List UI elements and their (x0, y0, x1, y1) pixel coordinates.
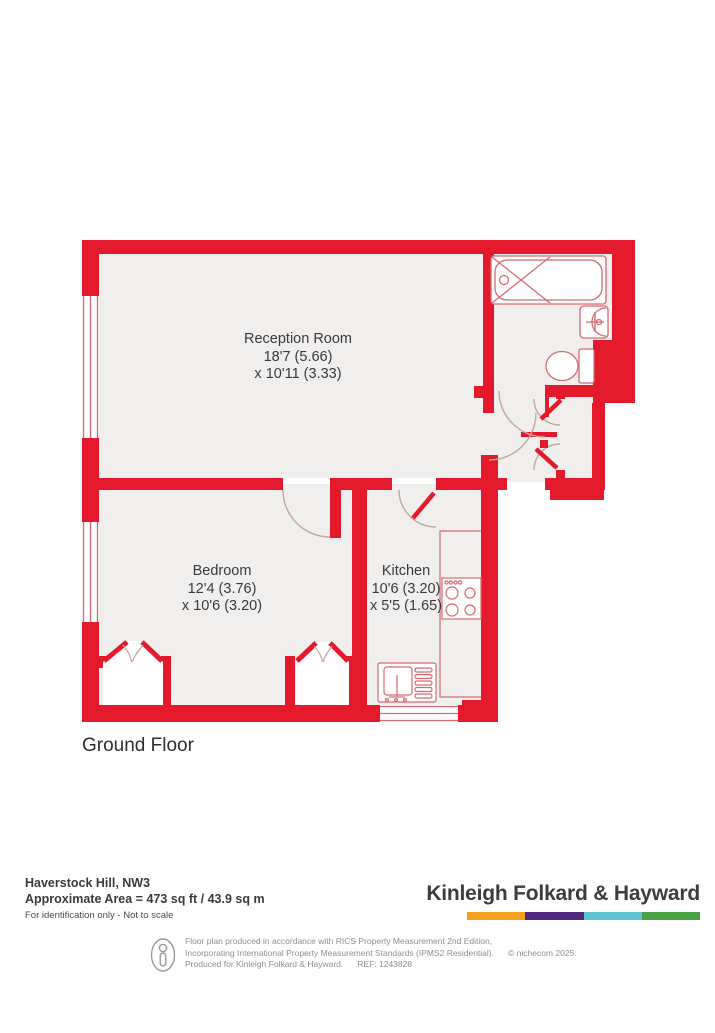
disclaimer: Floor plan produced in accordance with R… (150, 936, 577, 973)
brand-bar-green (642, 912, 700, 920)
room-dim-2: x 10'6 (3.20) (122, 598, 322, 616)
bathtub-icon (491, 256, 606, 304)
room-dim-2: x 10'11 (3.33) (198, 366, 398, 384)
room-dim-1: 18'7 (5.66) (198, 349, 398, 367)
disclaimer-ref: REF: 1243828 (357, 959, 412, 969)
bedroom-door-leaf (330, 490, 341, 538)
disclaimer-line-2: Incorporating International Property Mea… (185, 948, 577, 960)
disclaimer-line-3: Produced for Kinleigh Folkard & Hayward.… (185, 959, 577, 971)
room-name: Reception Room (198, 331, 398, 349)
disclaimer-line-1: Floor plan produced in accordance with R… (185, 936, 577, 948)
room-name: Bedroom (122, 563, 322, 581)
washbasin-icon (580, 306, 608, 338)
brand-color-bar (467, 912, 700, 920)
disclaimer-copyright: © nichecom 2025. (508, 948, 577, 958)
bedroom-label: Bedroom 12'4 (3.76) x 10'6 (3.20) (122, 563, 322, 616)
property-address: Haverstock Hill, NW3 (25, 875, 265, 891)
disclaimer-produced-for: Produced for Kinleigh Folkard & Hayward. (185, 959, 343, 969)
brand-name: Kinleigh Folkard & Hayward (426, 882, 700, 906)
kitchen-sink-icon (378, 663, 436, 702)
floor-title: Ground Floor (82, 735, 194, 757)
disclaimer-text: Floor plan produced in accordance with R… (185, 936, 577, 971)
nichecom-person-icon (150, 937, 176, 973)
property-info: Haverstock Hill, NW3 Approximate Area = … (25, 875, 265, 921)
brand-bar-teal (584, 912, 642, 920)
room-name: Kitchen (331, 563, 481, 581)
brand-bar-orange (467, 912, 525, 920)
disclaimer-line-2-text: Incorporating International Property Mea… (185, 948, 494, 958)
toilet-icon (546, 349, 594, 383)
reception-room-label: Reception Room 18'7 (5.66) x 10'11 (3.33… (198, 331, 398, 384)
brand-bar-purple (525, 912, 583, 920)
room-dim-2: x 5'5 (1.65) (331, 598, 481, 616)
brand-logo: Kinleigh Folkard & Hayward (426, 882, 700, 920)
room-dim-1: 12'4 (3.76) (122, 581, 322, 599)
room-dim-1: 10'6 (3.20) (331, 581, 481, 599)
approximate-area: Approximate Area = 473 sq ft / 43.9 sq m (25, 891, 265, 907)
kitchen-label: Kitchen 10'6 (3.20) x 5'5 (1.65) (331, 563, 481, 616)
identification-note: For identification only - Not to scale (25, 910, 265, 921)
